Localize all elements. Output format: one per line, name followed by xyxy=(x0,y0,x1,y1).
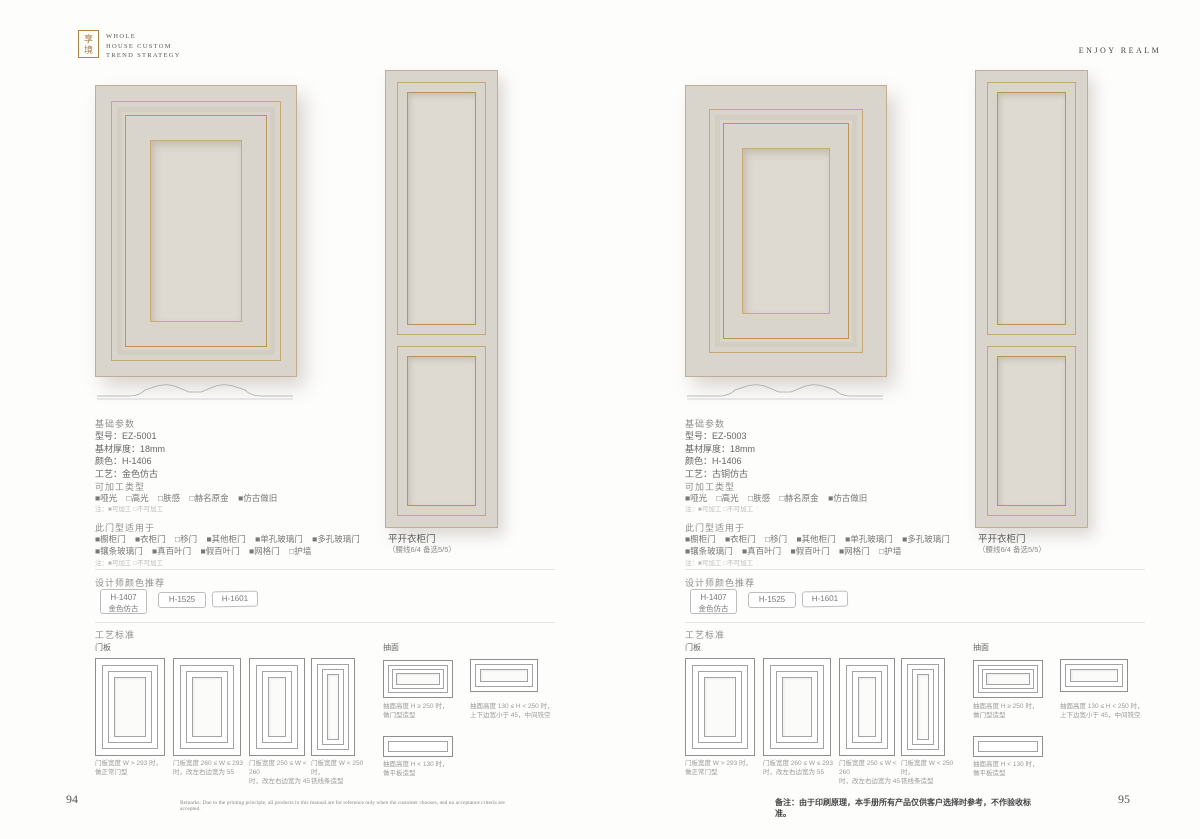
applicable-option: ■真百叶门 xyxy=(152,546,191,556)
applicable-option: ■多孔玻璃门 xyxy=(902,534,950,544)
logo-line: HOUSE CUSTOM xyxy=(106,42,181,52)
tall-wardrobe-door-image xyxy=(385,70,498,528)
finish-option: □肤感 xyxy=(748,493,770,503)
section-divider xyxy=(95,569,555,570)
section-title-basic-params: 基础参数 xyxy=(95,417,135,430)
finish-option: □赫名原金 xyxy=(780,493,819,503)
section-title-craft-standard: 工艺标准 xyxy=(685,628,725,641)
param-row: 工艺：古铜仿古 xyxy=(685,468,755,481)
door-diagram xyxy=(763,658,831,756)
legend-note: 注：■可加工 □不可加工 xyxy=(95,503,163,513)
color-code: H-1601 xyxy=(213,592,257,607)
color-chip: H-1601 xyxy=(212,591,258,608)
applicable-option: ■橱柜门 xyxy=(685,534,716,544)
drawer-diagram xyxy=(383,736,453,757)
molding-profile-drawing xyxy=(95,380,295,402)
applicable-option: ■其他柜门 xyxy=(207,534,246,544)
color-code: H-1525 xyxy=(159,593,205,607)
color-code: H-1407 xyxy=(101,592,146,604)
door-type-name: 平开衣柜门 xyxy=(388,531,436,545)
door-diagram xyxy=(95,658,165,756)
door-diagram-caption: 门板宽度 W < 250 时， 铣线条造型 xyxy=(901,759,961,786)
finish-option: ■仿古做旧 xyxy=(828,493,867,503)
door-diagram xyxy=(901,658,945,756)
param-row: 颜色：H-1406 xyxy=(685,455,755,468)
param-row: 基材厚度：18mm xyxy=(95,443,165,456)
color-code: H-1525 xyxy=(749,593,795,607)
door-diagram-caption: 门板宽度 260 ≤ W ≤ 293 时，改左右边宽为 55 xyxy=(173,759,247,777)
drawer-diagram-caption: 抽面高度 H < 130 时， 做平板造型 xyxy=(383,760,467,778)
door-diagram xyxy=(173,658,241,756)
applicable-option: □护墙 xyxy=(879,546,901,556)
door-type-note: （腰线6/4 备选5/5） xyxy=(978,544,1046,555)
catalog-spread: 享境 WHOLE HOUSE CUSTOM TREND STRATEGY 基础参… xyxy=(0,0,1200,839)
applicable-option: ■衣柜门 xyxy=(725,534,756,544)
section-divider xyxy=(685,622,1145,623)
color-label: 金色仿古 xyxy=(691,604,736,614)
large-door-panel-image xyxy=(685,85,887,377)
applicable-option: □移门 xyxy=(765,534,787,544)
door-type-note: （腰线6/4 备选5/5） xyxy=(388,544,456,555)
param-row: 颜色：H-1406 xyxy=(95,455,165,468)
page-94: 享境 WHOLE HOUSE CUSTOM TREND STRATEGY 基础参… xyxy=(0,0,600,839)
page-number: 95 xyxy=(1118,792,1130,807)
door-diagram xyxy=(685,658,755,756)
legend-note: 注：■可加工 □不可加工 xyxy=(685,557,753,567)
drawer-diagram-caption: 抽面高度 H ≥ 250 时， 做门型造型 xyxy=(973,702,1057,720)
door-type-name: 平开衣柜门 xyxy=(978,531,1026,545)
door-diagram xyxy=(249,658,305,756)
drawer-diagram-caption: 抽面高度 H < 130 时， 做平板造型 xyxy=(973,760,1057,778)
finish-option: ■哑光 xyxy=(685,493,707,503)
applicable-option: ■网格门 xyxy=(249,546,280,556)
door-diagram-caption: 门板宽度 250 ≤ W < 260 时，改左右边宽为 45 xyxy=(249,759,315,786)
applicable-option: ■网格门 xyxy=(839,546,870,556)
color-code: H-1407 xyxy=(691,592,736,604)
drawer-diagram xyxy=(973,660,1043,698)
applicable-option: □护墙 xyxy=(289,546,311,556)
applicable-option: □移门 xyxy=(175,534,197,544)
applicable-options-row1: ■橱柜门 ■衣柜门 □移门 ■其他柜门 ■单孔玻璃门 ■多孔玻璃门 xyxy=(685,533,957,545)
door-diagram-caption: 门板宽度 260 ≤ W ≤ 293 时，改左右边宽为 55 xyxy=(763,759,837,777)
basic-params-list: 型号：EZ-5001 基材厚度：18mm 颜色：H-1406 工艺：金色仿古 xyxy=(95,430,165,480)
color-label: 金色仿古 xyxy=(101,604,146,614)
wardrobe-door-upper-section xyxy=(397,82,486,335)
basic-params-list: 型号：EZ-5003 基材厚度：18mm 颜色：H-1406 工艺：古铜仿古 xyxy=(685,430,755,480)
door-diagram-caption: 门板宽度 250 ≤ W < 260 时，改左右边宽为 45 xyxy=(839,759,905,786)
legend-note: 注：■可加工 □不可加工 xyxy=(685,503,753,513)
finish-option: ■哑光 xyxy=(95,493,117,503)
section-divider xyxy=(95,622,555,623)
enjoy-realm-title: ENJOY REALM xyxy=(1060,46,1180,55)
applicable-option: ■其他柜门 xyxy=(797,534,836,544)
finish-option: □赫名原金 xyxy=(190,493,229,503)
applicable-option: ■镶条玻璃门 xyxy=(95,546,143,556)
door-center-panel xyxy=(997,356,1066,506)
drawer-diagram-caption: 抽面高度 130 ≤ H < 250 时， 上下边宽小于 45，中间铣空 xyxy=(1060,702,1156,720)
applicable-options-row2: ■镶条玻璃门 ■真百叶门 ■假百叶门 ■网格门 □护墙 xyxy=(685,545,908,557)
wardrobe-door-lower-section xyxy=(397,346,486,516)
drawer-diagram xyxy=(1060,659,1128,692)
logo-line: TREND STRATEGY xyxy=(106,51,181,61)
drawer-diagram-caption: 抽面高度 H ≥ 250 时， 做门型造型 xyxy=(383,702,467,720)
applicable-option: ■镶条玻璃门 xyxy=(685,546,733,556)
footer-remark-cn: 备注：由于印刷原理，本手册所有产品仅供客户选择时参考，不作验收标准。 xyxy=(775,797,1035,819)
drawer-face-label: 抽面 xyxy=(973,642,989,653)
section-title-designer-colors: 设计师颜色推荐 xyxy=(685,576,755,589)
finish-option: □肤感 xyxy=(158,493,180,503)
page-number: 94 xyxy=(66,792,78,807)
door-diagram-caption: 门板宽度 W < 250 时， 铣线条造型 xyxy=(311,759,371,786)
door-center-panel xyxy=(742,148,830,314)
section-title-craft-standard: 工艺标准 xyxy=(95,628,135,641)
color-code: H-1601 xyxy=(803,592,847,607)
door-diagram-caption: 门板宽度 W > 293 时， 做正常门型 xyxy=(95,759,171,777)
brand-logo: WHOLE HOUSE CUSTOM TREND STRATEGY xyxy=(106,32,181,61)
color-chip: H-1525 xyxy=(158,592,206,608)
color-chip: H-1525 xyxy=(748,592,796,608)
wardrobe-door-lower-section xyxy=(987,346,1076,516)
door-panel-label: 门板 xyxy=(685,642,701,653)
legend-note: 注：■可加工 □不可加工 xyxy=(95,557,163,567)
applicable-option: ■单孔玻璃门 xyxy=(845,534,893,544)
wardrobe-door-upper-section xyxy=(987,82,1076,335)
door-center-panel xyxy=(407,356,476,506)
door-center-panel xyxy=(150,140,242,322)
drawer-face-label: 抽面 xyxy=(383,642,399,653)
finish-option: ■仿古做旧 xyxy=(238,493,277,503)
applicable-option: ■单孔玻璃门 xyxy=(255,534,303,544)
tall-wardrobe-door-image xyxy=(975,70,1088,528)
brand-seal-icon: 享境 xyxy=(78,30,99,58)
finish-option: □高光 xyxy=(717,493,739,503)
param-row: 基材厚度：18mm xyxy=(685,443,755,456)
drawer-diagram-caption: 抽面高度 130 ≤ H < 250 时， 上下边宽小于 45，中间铣空 xyxy=(470,702,566,720)
section-divider xyxy=(685,569,1145,570)
param-row: 工艺：金色仿古 xyxy=(95,468,165,481)
door-center-panel xyxy=(997,92,1066,325)
applicable-option: ■假百叶门 xyxy=(201,546,240,556)
molding-profile-drawing xyxy=(685,380,885,402)
applicable-option: ■橱柜门 xyxy=(95,534,126,544)
section-title-designer-colors: 设计师颜色推荐 xyxy=(95,576,165,589)
color-chip: H-1601 xyxy=(802,591,848,608)
door-diagram xyxy=(311,658,355,756)
applicable-option: ■多孔玻璃门 xyxy=(312,534,360,544)
door-diagram xyxy=(839,658,895,756)
applicable-options-row1: ■橱柜门 ■衣柜门 □移门 ■其他柜门 ■单孔玻璃门 ■多孔玻璃门 xyxy=(95,533,367,545)
door-diagram-caption: 门板宽度 W > 293 时， 做正常门型 xyxy=(685,759,761,777)
drawer-diagram xyxy=(973,736,1043,757)
door-center-panel xyxy=(407,92,476,325)
door-panel-label: 门板 xyxy=(95,642,111,653)
footer-remark-en: Remarks: Due to the printing principle, … xyxy=(180,800,510,812)
finish-option: □高光 xyxy=(127,493,149,503)
applicable-option: ■真百叶门 xyxy=(742,546,781,556)
color-chip: H-1407 金色仿古 xyxy=(100,589,147,614)
large-door-panel-image xyxy=(95,85,297,377)
color-chip: H-1407 金色仿古 xyxy=(690,589,737,614)
applicable-option: ■假百叶门 xyxy=(791,546,830,556)
page-95: ENJOY REALM 基础参数 型号：EZ-5003 基材厚度：18mm 颜色… xyxy=(590,0,1190,839)
logo-line: WHOLE xyxy=(106,32,181,42)
section-title-basic-params: 基础参数 xyxy=(685,417,725,430)
param-row: 型号：EZ-5003 xyxy=(685,430,755,443)
applicable-options-row2: ■镶条玻璃门 ■真百叶门 ■假百叶门 ■网格门 □护墙 xyxy=(95,545,318,557)
applicable-option: ■衣柜门 xyxy=(135,534,166,544)
param-row: 型号：EZ-5001 xyxy=(95,430,165,443)
drawer-diagram xyxy=(470,659,538,692)
drawer-diagram xyxy=(383,660,453,698)
